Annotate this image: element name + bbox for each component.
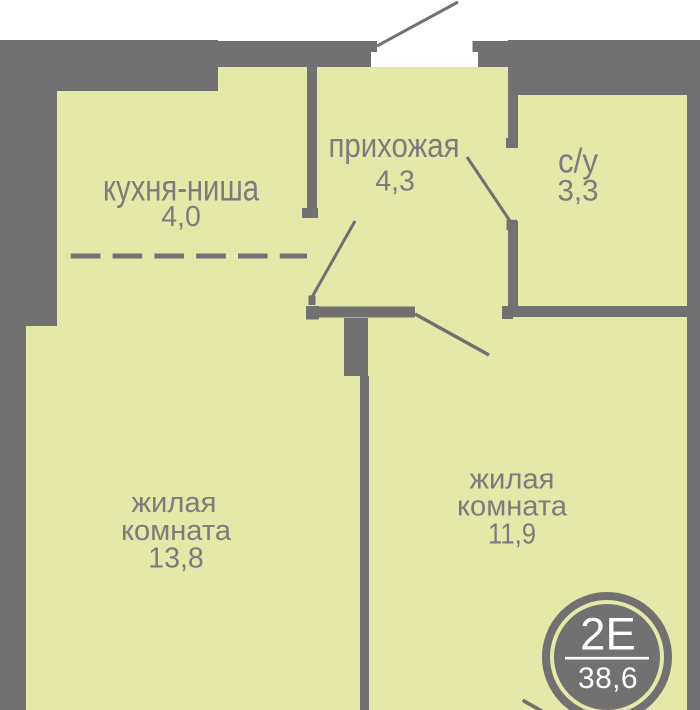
svg-text:4,3: 4,3	[375, 166, 415, 198]
svg-text:38,6: 38,6	[578, 662, 638, 695]
svg-text:4,0: 4,0	[161, 201, 201, 233]
svg-text:2Е: 2Е	[580, 609, 636, 660]
svg-text:прихожая: прихожая	[329, 127, 460, 165]
svg-text:11,9: 11,9	[488, 518, 536, 550]
svg-text:3,3: 3,3	[557, 174, 598, 207]
svg-text:13,8: 13,8	[148, 543, 203, 575]
